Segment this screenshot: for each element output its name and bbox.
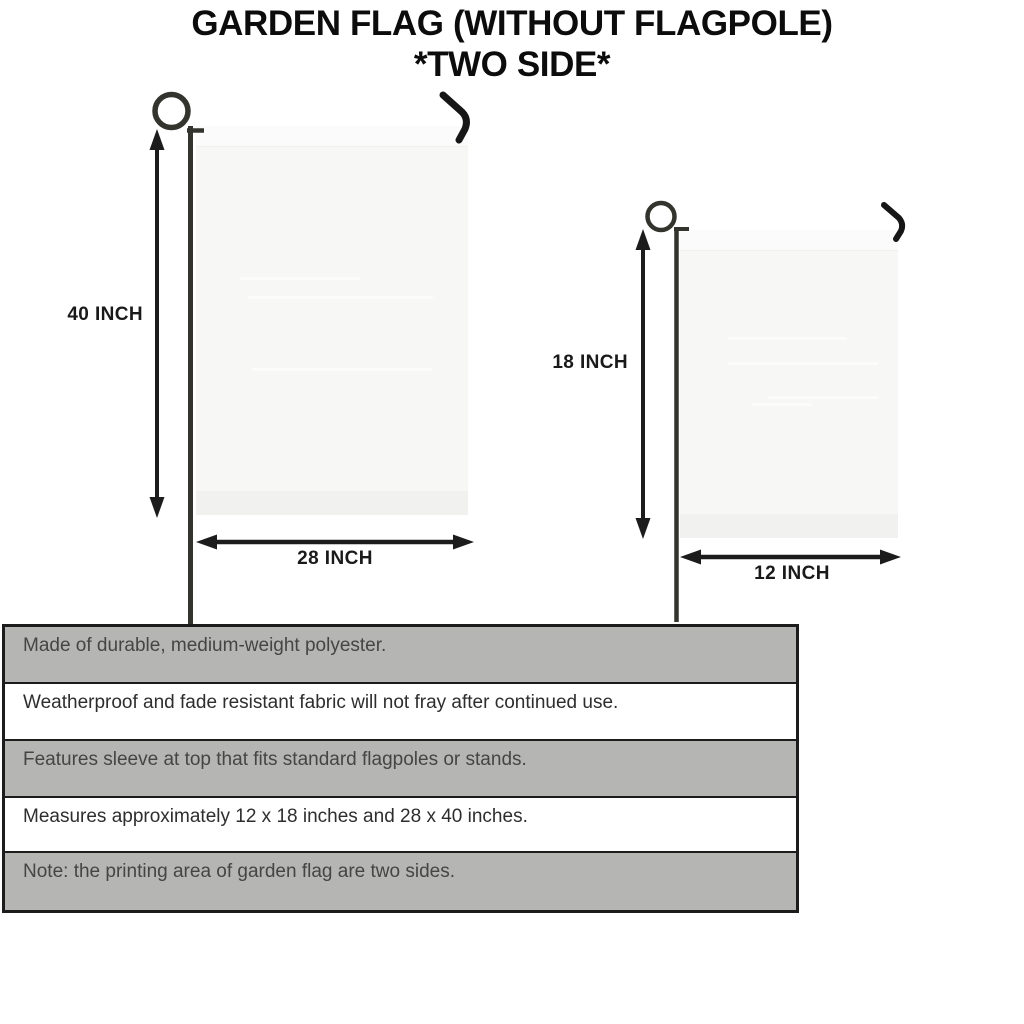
large-flag-width-label: 28 INCH xyxy=(235,548,435,570)
arrow-down-head xyxy=(636,518,651,539)
large-flag-crease xyxy=(240,277,360,280)
table-row: Weatherproof and fade resistant fabric w… xyxy=(5,684,796,741)
table-row: Features sleeve at top that fits standar… xyxy=(5,741,796,798)
small-flag-crease xyxy=(752,403,812,406)
large-flag-crease xyxy=(248,296,433,299)
small-flag-crease xyxy=(768,396,878,399)
small-flag-width-label: 12 INCH xyxy=(692,563,892,585)
small-flag-crease xyxy=(728,362,878,365)
large-flag xyxy=(196,126,468,515)
title-line-1: GARDEN FLAG (WITHOUT FLAGPOLE) xyxy=(0,4,1024,45)
small-flag-sleeve xyxy=(680,230,898,251)
small-flag-crease xyxy=(727,337,847,340)
small-flag-hem xyxy=(680,514,898,538)
small-flag-height-label: 18 INCH xyxy=(523,352,628,374)
large-flag-hem xyxy=(196,491,468,515)
large-flag-sleeve xyxy=(196,126,468,147)
large-height-arrow xyxy=(150,129,165,518)
arrow-down-head xyxy=(150,497,165,518)
small-height-arrow xyxy=(636,229,651,539)
title-line-2: *TWO SIDE* xyxy=(0,45,1024,86)
table-row: Made of durable, medium-weight polyester… xyxy=(5,627,796,684)
table-row: Measures approximately 12 x 18 inches an… xyxy=(5,798,796,853)
large-flag-height-label: 40 INCH xyxy=(38,304,143,326)
page-title: GARDEN FLAG (WITHOUT FLAGPOLE) *TWO SIDE… xyxy=(0,4,1024,85)
arrow-up-head xyxy=(636,229,651,250)
arrow-left-head xyxy=(196,535,217,550)
small-flagpole-loop-icon xyxy=(648,203,675,230)
arrow-up-head xyxy=(150,129,165,150)
garden-flag-size-infographic: GARDEN FLAG (WITHOUT FLAGPOLE) *TWO SIDE… xyxy=(0,0,1024,1024)
features-table: Made of durable, medium-weight polyester… xyxy=(2,624,799,913)
large-flagpole-loop-icon xyxy=(155,95,188,128)
arrow-right-head xyxy=(453,535,474,550)
large-flag-crease xyxy=(252,368,432,371)
small-flag xyxy=(680,230,898,538)
table-row: Note: the printing area of garden flag a… xyxy=(5,853,796,910)
